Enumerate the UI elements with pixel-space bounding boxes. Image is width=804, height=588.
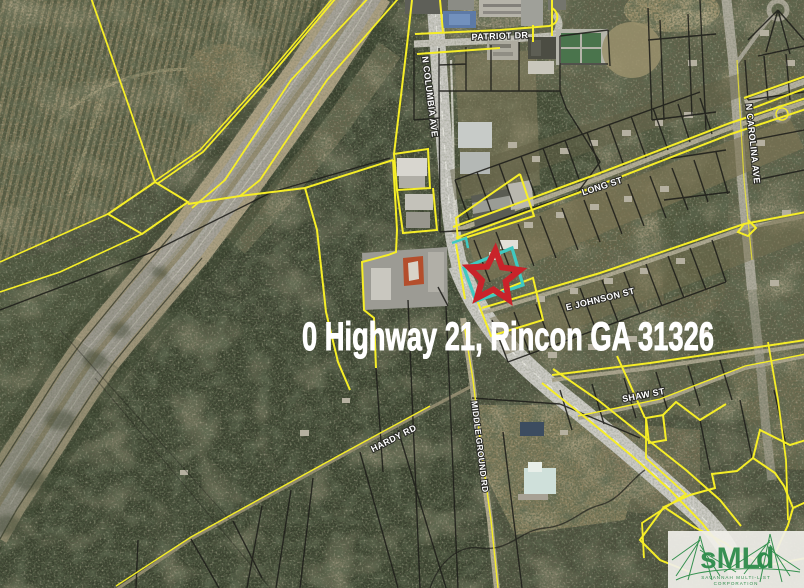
svg-text:0 Highway 21, Rincon GA 31326: 0 Highway 21, Rincon GA 31326 xyxy=(302,315,714,359)
svg-text:SAVANNAH MULTI-LIST: SAVANNAH MULTI-LIST xyxy=(701,575,771,580)
svg-text:PATRIOT DR: PATRIOT DR xyxy=(471,30,528,42)
svg-text:sML: sML xyxy=(700,542,760,575)
svg-text:d: d xyxy=(756,542,774,575)
svg-text:CORPORATION: CORPORATION xyxy=(714,581,759,586)
